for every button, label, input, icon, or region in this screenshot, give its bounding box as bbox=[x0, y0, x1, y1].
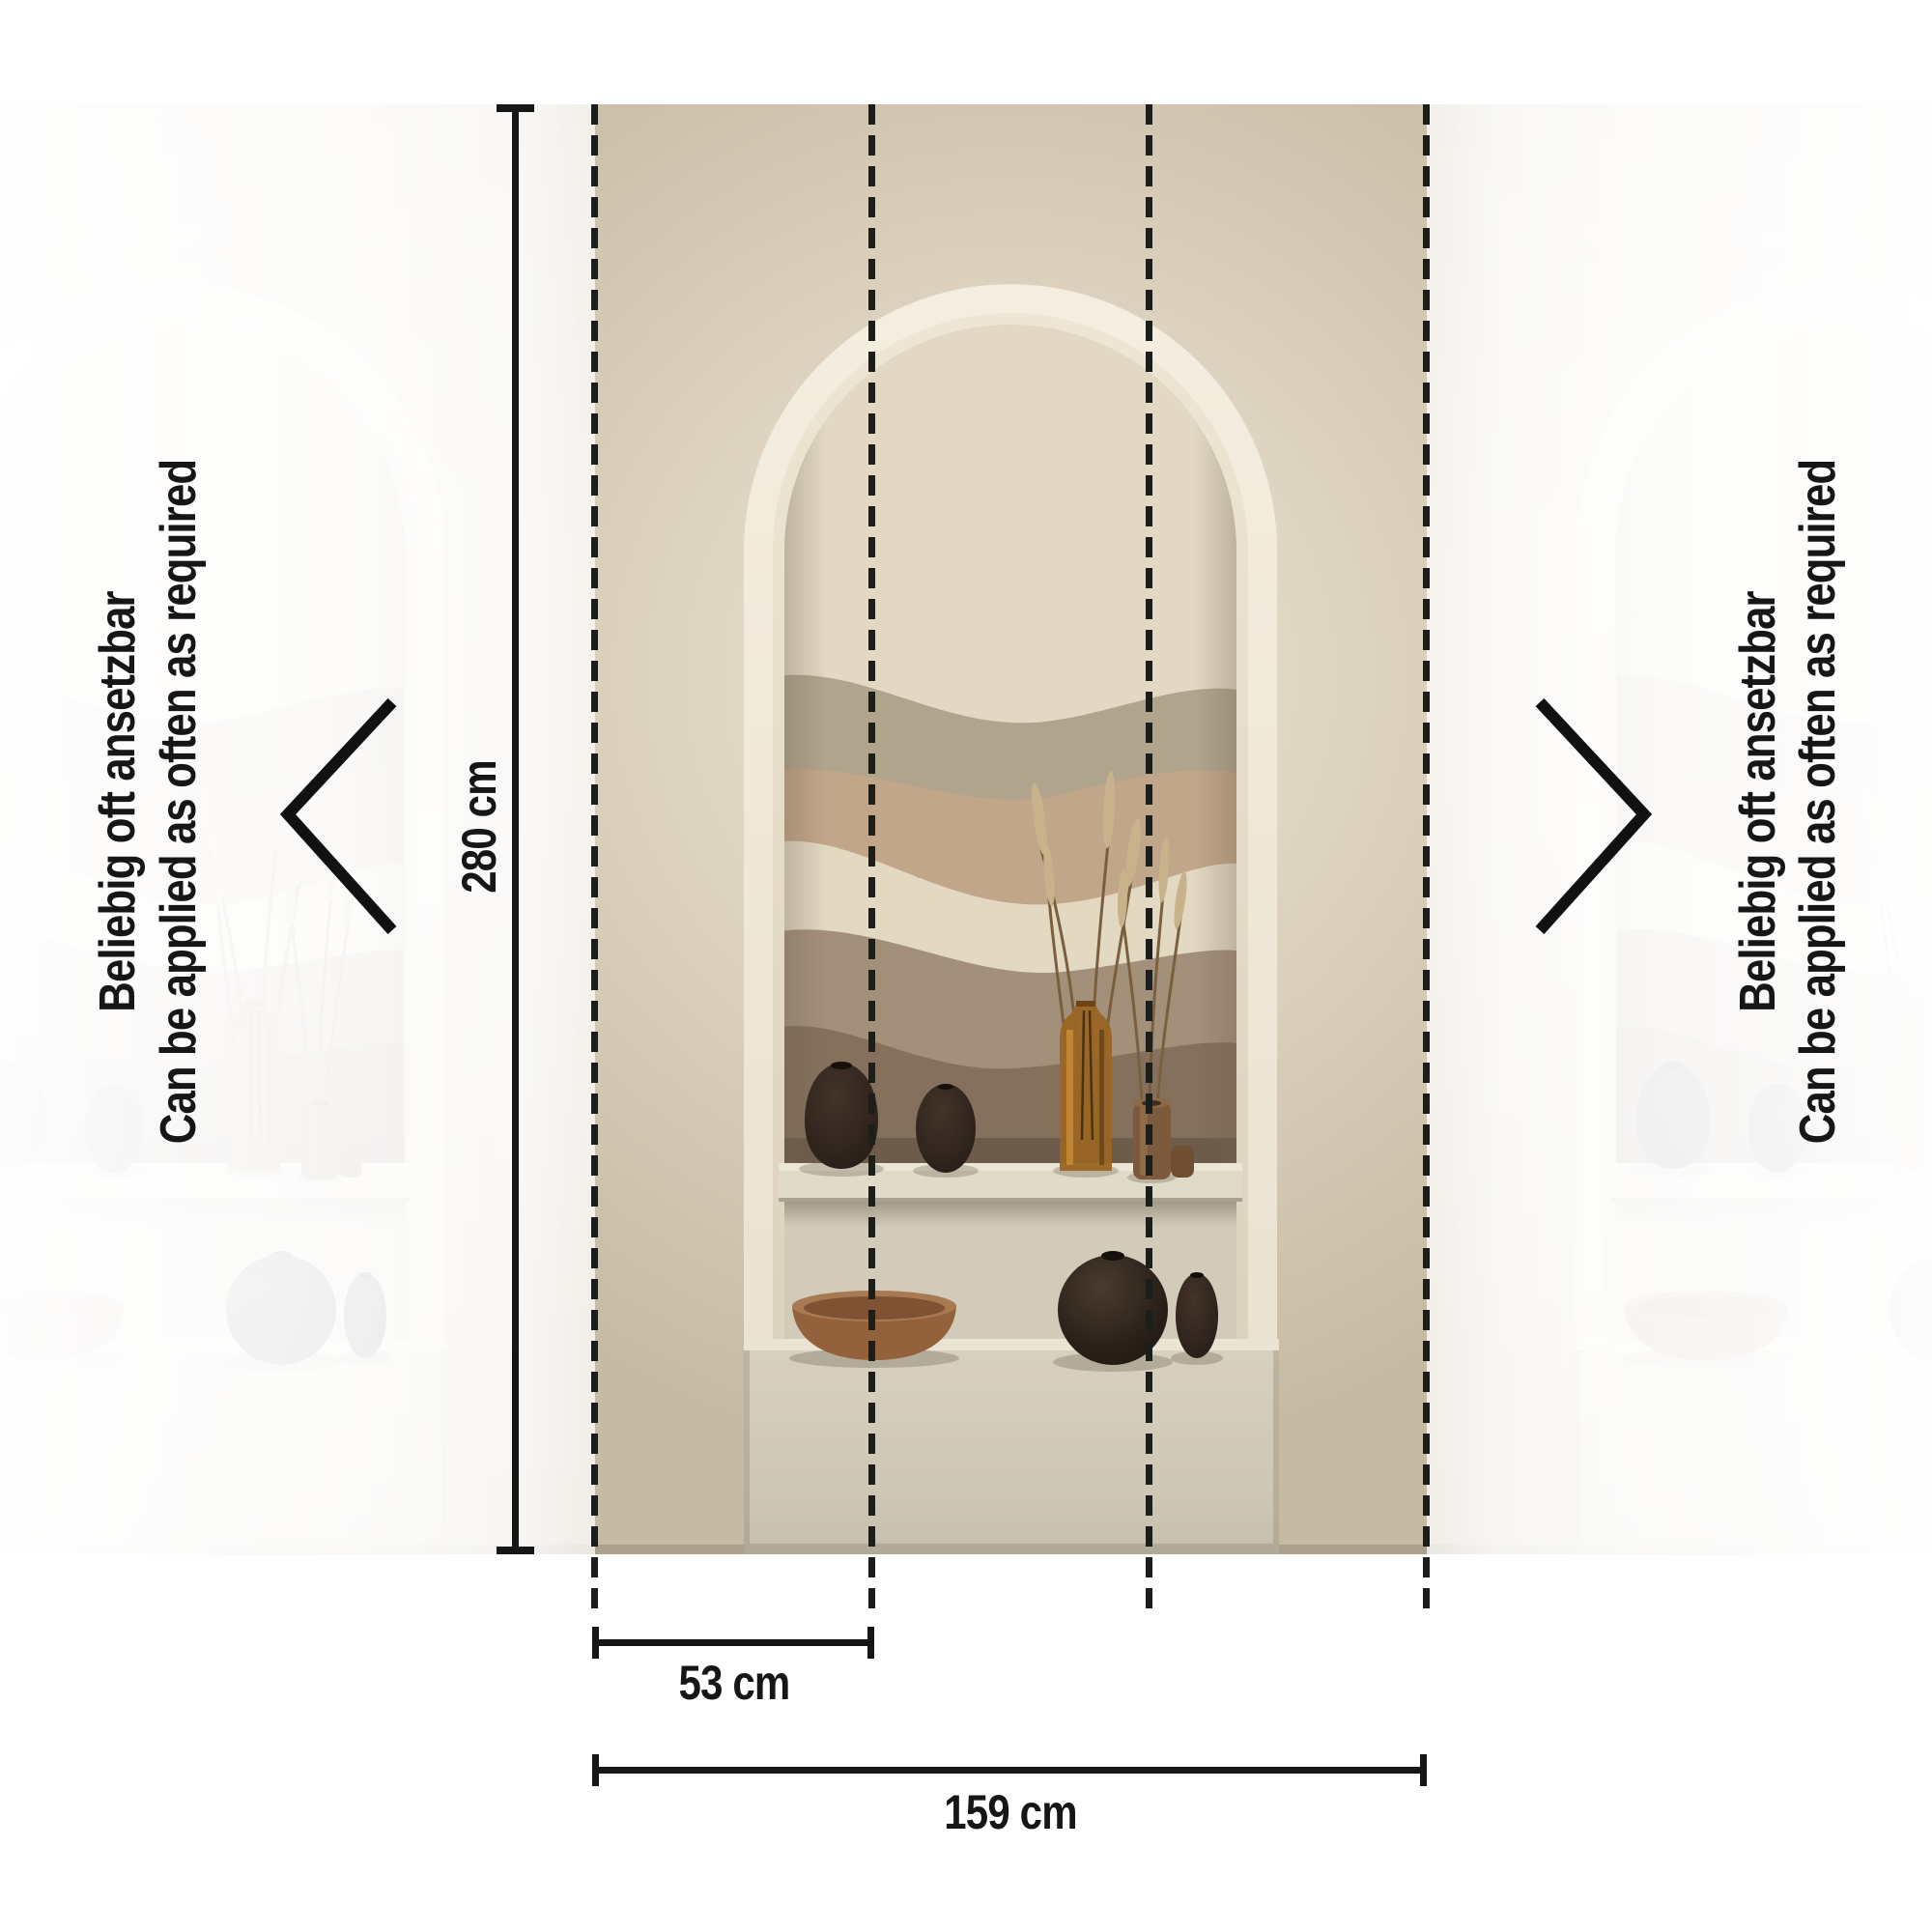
strip-width-cap-right bbox=[867, 1627, 874, 1659]
total-width-bracket bbox=[592, 1767, 1427, 1774]
repeat-note-right-de: Beliebig oft ansetzbar bbox=[1729, 591, 1787, 1011]
height-dimension-line bbox=[512, 108, 519, 1554]
strip-guide-line-4 bbox=[1423, 104, 1430, 1616]
height-dimension-cap-top bbox=[497, 104, 534, 112]
wallpaper-center bbox=[595, 104, 1427, 1554]
total-width-label: 159 cm bbox=[944, 1784, 1076, 1840]
chevron-right-icon bbox=[1519, 691, 1654, 942]
repeat-note-left-en: Can be applied as often as required bbox=[150, 460, 208, 1145]
chevron-left-icon bbox=[278, 691, 413, 942]
height-dimension-cap-bottom bbox=[497, 1547, 534, 1554]
repeat-note-left-de: Beliebig oft ansetzbar bbox=[89, 591, 147, 1011]
height-label: 280 cm bbox=[451, 760, 507, 893]
strip-guide-line-3 bbox=[1146, 104, 1152, 1616]
strip-width-label: 53 cm bbox=[679, 1655, 790, 1711]
repeat-note-right-en: Can be applied as often as required bbox=[1789, 460, 1847, 1145]
product-dimension-illustration: 280 cm 53 cm 159 cm Beliebig oft ansetzb… bbox=[0, 0, 1932, 1932]
strip-width-cap-left bbox=[592, 1627, 599, 1659]
total-width-cap-left bbox=[592, 1754, 599, 1786]
strip-guide-line-1 bbox=[591, 104, 598, 1616]
wallpaper-repeat-right bbox=[1427, 104, 1932, 1554]
total-width-cap-right bbox=[1420, 1754, 1427, 1786]
strip-width-bracket bbox=[592, 1639, 874, 1646]
strip-guide-line-2 bbox=[868, 104, 875, 1616]
